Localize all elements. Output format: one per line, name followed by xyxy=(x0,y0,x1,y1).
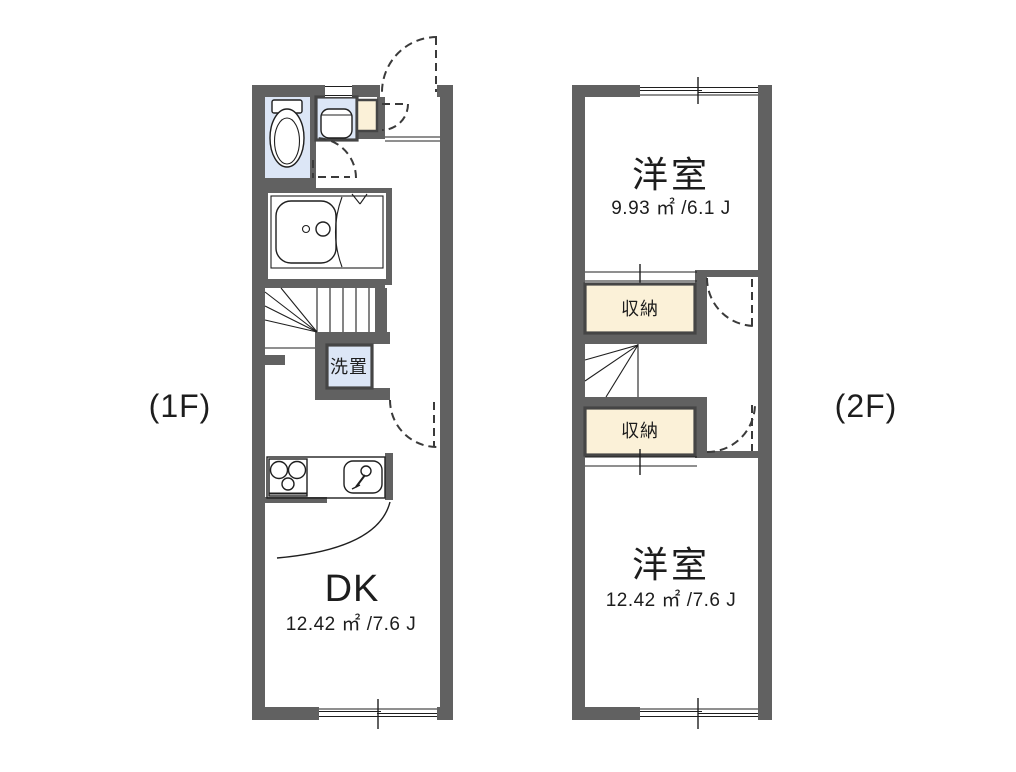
bathroom xyxy=(262,188,392,285)
closet-top: 収納 xyxy=(585,264,697,333)
laundry-label: 洗置 xyxy=(330,357,368,377)
washroom-door-arc xyxy=(316,138,356,178)
floor-label-1f: (1F) xyxy=(149,388,212,424)
door-arcs-2f xyxy=(707,278,755,452)
closet-bottom-label: 収納 xyxy=(621,421,659,441)
toilet-fixture xyxy=(270,100,304,167)
room-top-door-arc xyxy=(707,278,755,326)
laundry-space: 洗置 xyxy=(327,345,372,388)
closet-bottom: 収納 xyxy=(585,408,697,475)
floor-1f: 洗置 xyxy=(252,37,453,729)
room-area-bottom: 12.42 ㎡ /7.6 J xyxy=(606,588,737,611)
sink-icon xyxy=(344,461,382,493)
room-name-dk: DK xyxy=(325,568,380,610)
floor-label-2f: (2F) xyxy=(835,388,898,424)
floorplan-canvas: 洗置 xyxy=(0,0,1016,772)
floor-2f: 収納 収納 xyxy=(572,77,772,729)
floorplan-page: 洗置 xyxy=(0,0,1016,772)
room-name-bottom: 洋室 xyxy=(632,544,710,585)
stove-icon xyxy=(269,459,307,496)
room-bottom-door-arc xyxy=(707,404,755,452)
bath-drain xyxy=(316,222,330,236)
kitchen-door-arc xyxy=(277,502,390,558)
kitchen xyxy=(267,457,390,558)
staircase-2f xyxy=(585,344,638,397)
closet-top-label: 収納 xyxy=(621,299,659,319)
washbasin xyxy=(316,97,357,140)
room-area-dk: 12.42 ㎡ /7.6 J xyxy=(286,612,417,635)
room-area-top: 9.93 ㎡ /6.1 J xyxy=(611,196,731,219)
entry-inner-door-arc xyxy=(382,104,408,130)
room-name-top: 洋室 xyxy=(632,154,710,195)
entrance-door-arc xyxy=(382,37,437,92)
dk-door-arc xyxy=(390,400,437,447)
